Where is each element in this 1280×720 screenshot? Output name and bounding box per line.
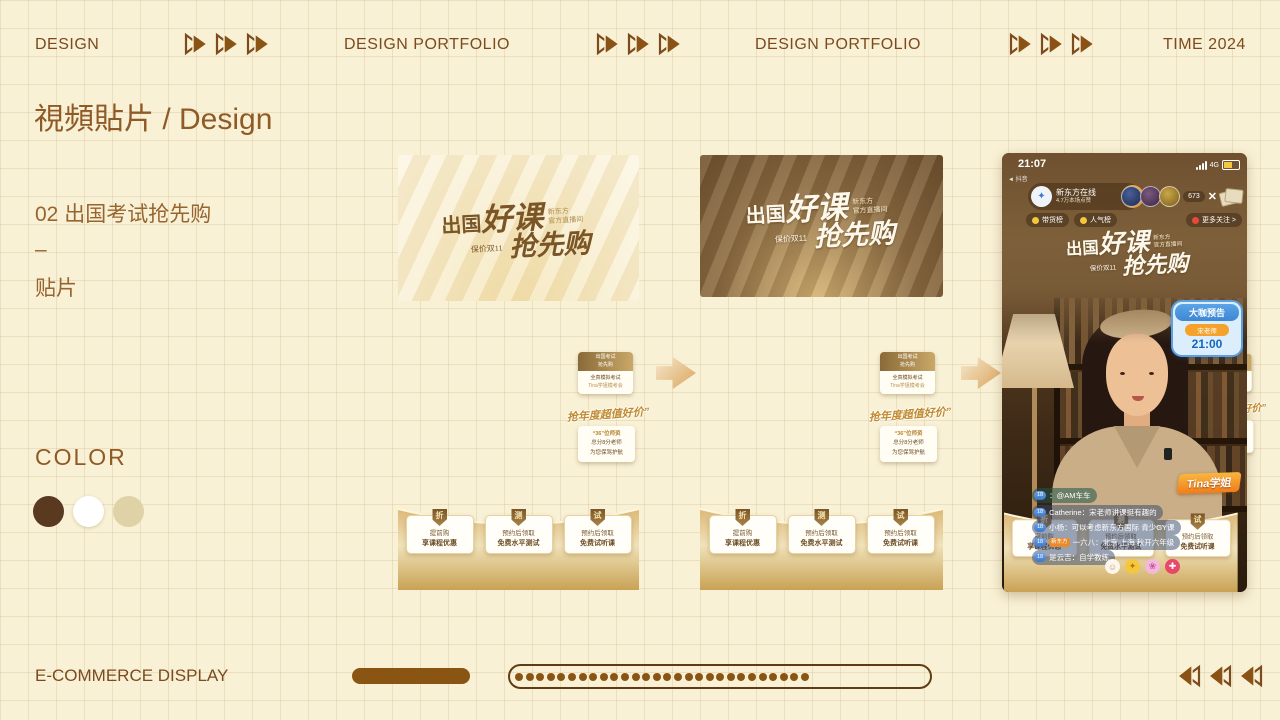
benefit-cards: 折 提前购 享课程优惠 测 预约后领取 免费水平测试 试 预约后领取 免费试听课 <box>700 515 943 554</box>
viewer-avatar[interactable] <box>1140 186 1161 207</box>
header-arrows-2 <box>595 32 683 56</box>
script-slogan: 抢年度超值好价” <box>856 402 965 425</box>
note-header-line2: 抢先购 <box>880 362 935 370</box>
script-slogan: 抢年度超值好价” <box>554 402 663 425</box>
benefit-line2: 享课程优惠 <box>712 538 774 548</box>
banner-price-tag: 保价双11 <box>775 232 808 245</box>
shield-badge-icon: 测 <box>814 509 829 526</box>
phone-mockup: 21:07 4G ◄ 抖音 ✦ 新东方在线 4.7万本场点赞 ¥ 673 ✕ 带… <box>1002 153 1247 592</box>
streamer-avatar: ✦ <box>1031 186 1052 207</box>
banner-word3: 抢先购 <box>1121 252 1188 278</box>
flow-arrow-icon <box>656 354 696 392</box>
play-arrow-icon <box>1008 32 1034 56</box>
benefit-card-discount: 折 提前购 享课程优惠 <box>406 515 474 554</box>
benefit-line2: 免费水平测试 <box>488 538 550 548</box>
shield-badge-icon: 试 <box>893 509 908 526</box>
benefit-card-test: 测 预约后领取 免费水平测试 <box>485 515 553 554</box>
progress-dots <box>515 673 812 681</box>
info-line2: 总分8分老师 <box>881 439 936 448</box>
info-line2: 总分8分老师 <box>579 439 634 448</box>
note-body-line1: 全真模拟考试 <box>881 374 934 382</box>
flow-arrow-icon <box>961 354 1001 392</box>
info-line3: 为您保驾护航 <box>881 449 936 458</box>
chat-message: 18 小杨：可以考虑新东方国际 青少GY课 <box>1032 520 1181 535</box>
level-badge: 18 <box>1034 538 1046 547</box>
gift-emoji-icon[interactable]: ✚ <box>1165 559 1180 574</box>
banner-price-tag: 保价双11 <box>1090 263 1117 273</box>
streamer-info: 新东方在线 4.7万本场点赞 <box>1056 188 1096 204</box>
smiley-emoji-icon[interactable]: ☺ <box>1105 559 1120 574</box>
chat-message: 18 ：@AM车车 <box>1032 488 1097 503</box>
play-arrow-icon <box>626 32 652 56</box>
banner-dark-panel: 出国 好课 新东方 官方直播间 保价双11 抢先购 <box>700 155 943 297</box>
benefit-line1: 预约后领取 <box>488 527 550 537</box>
chat-text: Catherine：宋老师讲课挺有趣的 <box>1049 507 1157 518</box>
color-swatch-dark-brown <box>33 496 64 527</box>
benefit-arc-panel-2: 折 提前购 享课程优惠 测 预约后领取 免费水平测试 试 预约后领取 免费试听课 <box>700 489 943 590</box>
chat-text: 小杨：可以考虑新东方国际 青少GY课 <box>1049 522 1174 533</box>
streamer-likes: 4.7万本场点赞 <box>1056 198 1096 205</box>
eye <box>1120 372 1125 375</box>
benefit-line1: 提前购 <box>712 527 774 537</box>
header-time-label: TIME 2024 <box>1163 36 1246 54</box>
shield-badge-icon: 折 <box>432 509 447 526</box>
banner-text-phone: 出国 好课 新东方 官方直播间 保价双11 抢先购 <box>1031 227 1218 282</box>
close-icon[interactable]: ✕ <box>1208 190 1217 203</box>
back-arrow-icon[interactable] <box>1238 662 1264 690</box>
app-back-label[interactable]: ◄ 抖音 <box>1008 174 1028 183</box>
shield-badge-icon: 试 <box>1190 513 1205 529</box>
back-arrow-icon[interactable] <box>1176 662 1202 690</box>
banner-brand-line2: 官方直播间 <box>852 205 887 216</box>
level-badge: 18 <box>1034 491 1046 500</box>
color-section-label: COLOR <box>35 444 127 471</box>
note-card-body: 全真模拟考试 Tina学姐模考会 <box>578 371 633 394</box>
footer-label: E-COMMERCE DISPLAY <box>35 666 228 686</box>
clap-emoji-icon[interactable]: ✦ <box>1125 559 1140 574</box>
info-card: “36”位师资 总分8分老师 为您保驾护航 <box>880 426 937 462</box>
banner-brand-line2: 官方直播间 <box>1153 240 1182 249</box>
host-name-tag: Tina学姐 <box>1176 472 1242 494</box>
goods-cards-icon[interactable] <box>1220 188 1242 205</box>
note-card-header: 出国考试 抢先购 <box>578 352 633 371</box>
play-arrow-icon <box>214 32 240 56</box>
level-badge: 18 <box>1034 523 1046 532</box>
banner-word1: 出国 <box>745 205 786 227</box>
more-follow-label: 更多关注 > <box>1202 215 1236 225</box>
status-icons: 4G <box>1196 160 1240 170</box>
preview-title: 大咖预告 <box>1175 304 1239 321</box>
header-arrows-3 <box>1008 32 1096 56</box>
header-design-label: DESIGN <box>35 36 99 54</box>
overlay-elements-stack-1: 出国考试 抢先购 全真模拟考试 Tina学姐模考会 抢年度超值好价” “36”位… <box>560 350 655 468</box>
header-portfolio-label-1: DESIGN PORTFOLIO <box>344 36 510 54</box>
level-badge: 18 <box>1034 508 1046 517</box>
emoji-reactions: ☺ ✦ ❀ ✚ <box>1105 559 1180 574</box>
benefit-line2: 免费水平测试 <box>791 538 853 548</box>
viewer-avatar[interactable] <box>1121 186 1142 207</box>
host-face <box>1106 334 1168 416</box>
play-arrow-icon <box>183 32 209 56</box>
banner-brand: 新东方 官方直播间 <box>548 206 584 226</box>
shield-badge-icon: 折 <box>735 509 750 526</box>
chat-message: 18 是云吉：自学教练 <box>1032 550 1115 565</box>
eye <box>1149 372 1154 375</box>
benefit-arc-panel-1: 折 提前购 享课程优惠 测 预约后领取 免费水平测试 试 预约后领取 免费试听课 <box>398 489 639 590</box>
page-title: 視頻貼片 / Design <box>34 94 272 138</box>
section-dash: – <box>35 238 47 262</box>
rank-badges: 带货榜 人气榜 <box>1026 213 1117 227</box>
banner-light-panel: 出国 好课 新东方 官方直播间 保价双11 抢先购 <box>398 155 639 301</box>
benefit-card-discount: 折 提前购 享课程优惠 <box>709 515 777 554</box>
network-label: 4G <box>1210 162 1219 169</box>
banner-word1: 出国 <box>441 215 482 237</box>
note-card: 出国考试 抢先购 全真模拟考试 Tina学姐模考会 <box>578 352 633 394</box>
banner-word1: 出国 <box>1065 240 1099 258</box>
note-header-line1: 出国考试 <box>578 354 633 362</box>
play-arrow-icon <box>1070 32 1096 56</box>
header-portfolio-label-2: DESIGN PORTFOLIO <box>755 36 921 54</box>
note-header-line2: 抢先购 <box>578 362 633 370</box>
overlay-elements-stack-2: 出国考试 抢先购 全真模拟考试 Tina学姐模考会 抢年度超值好价” “36”位… <box>862 350 957 468</box>
benefit-card-trial: 试 预约后领取 免费试听课 <box>564 515 632 554</box>
color-swatch-beige <box>113 496 144 527</box>
flower-emoji-icon[interactable]: ❀ <box>1145 559 1160 574</box>
viewers-row: 673 ✕ <box>1121 186 1242 207</box>
benefit-line2: 免费试听课 <box>567 538 629 548</box>
banner-brand: 新东方 官方直播间 <box>852 196 888 216</box>
info-card: “36”位师资 总分8分老师 为您保驾护航 <box>578 426 635 462</box>
note-card-header: 出国考试 抢先购 <box>880 352 935 371</box>
note-body-line1: 全真模拟考试 <box>579 374 632 382</box>
header-arrows-1 <box>183 32 271 56</box>
benefit-line2: 免费试听课 <box>870 538 932 548</box>
chat-text: ：@AM车车 <box>1049 490 1090 501</box>
info-line1: “36”位师资 <box>579 430 634 439</box>
color-swatch-white <box>73 496 104 527</box>
benefit-line2: 享课程优惠 <box>409 538 471 548</box>
preview-time: 21:00 <box>1173 337 1241 351</box>
banner-word3: 抢先购 <box>813 220 895 251</box>
preview-teacher: 宋老师 <box>1185 324 1229 336</box>
preview-badge[interactable]: 大咖预告 宋老师 21:00 <box>1171 300 1243 357</box>
more-follow-badge[interactable]: 更多关注 > <box>1186 213 1242 227</box>
status-time: 21:07 <box>1018 158 1046 170</box>
benefit-line1: 预约后领取 <box>870 527 932 537</box>
signal-icon <box>1196 161 1207 170</box>
banner-text-light: 出国 好课 新东方 官方直播间 保价双11 抢先购 <box>435 201 591 265</box>
note-body-line2: Tina学姐模考会 <box>881 382 934 390</box>
fan-badge: 新东方 <box>1049 538 1070 547</box>
chat-message: 18 Catherine：宋老师讲课挺有趣的 <box>1032 505 1163 520</box>
progress-bar-solid <box>352 668 470 684</box>
benefit-card-test: 测 预约后领取 免费水平测试 <box>788 515 856 554</box>
mouth <box>1132 396 1144 401</box>
chat-text: 一六八：北京 上海 秋开六年级 <box>1073 537 1175 548</box>
info-line1: “36”位师资 <box>881 430 936 439</box>
play-arrow-icon <box>245 32 271 56</box>
note-header-line1: 出国考试 <box>880 354 935 362</box>
microphone-clip <box>1164 448 1172 460</box>
play-arrow-icon <box>595 32 621 56</box>
note-body-line2: Tina学姐模考会 <box>579 382 632 390</box>
viewer-count: 673 <box>1183 191 1205 202</box>
banner-price-tag: 保价双11 <box>471 242 503 255</box>
back-arrow-icon[interactable] <box>1207 662 1233 690</box>
benefit-card-trial: 试 预约后领取 免费试听课 <box>867 515 935 554</box>
section-label: 贴片 <box>35 272 77 302</box>
back-arrows[interactable] <box>1176 662 1264 690</box>
section-item-number: 02 出国考试抢先购 <box>35 198 211 228</box>
level-badge: 18 <box>1034 553 1046 562</box>
benefit-line1: 预约后领取 <box>567 527 629 537</box>
streamer-name: 新东方在线 <box>1056 188 1096 198</box>
host-collar <box>1114 426 1160 468</box>
benefit-cards: 折 提前购 享课程优惠 测 预约后领取 免费水平测试 试 预约后领取 免费试听课 <box>398 515 639 554</box>
info-line3: 为您保驾护航 <box>579 449 634 458</box>
note-card: 出国考试 抢先购 全真模拟考试 Tina学姐模考会 <box>880 352 935 394</box>
banner-word3: 抢先购 <box>509 230 591 261</box>
banner-brand: 新东方 官方直播间 <box>1153 233 1182 249</box>
banner-brand-line2: 官方直播间 <box>548 215 583 226</box>
popularity-rank-badge[interactable]: 人气榜 <box>1074 213 1117 227</box>
shield-badge-icon: 试 <box>590 509 605 526</box>
benefit-line1: 提前购 <box>409 527 471 537</box>
chat-text: 是云吉：自学教练 <box>1049 552 1109 563</box>
goods-rank-badge[interactable]: 带货榜 <box>1026 213 1069 227</box>
progress-bar-dotted <box>508 664 932 689</box>
banner-text-dark: 出国 好课 新东方 官方直播间 保价双11 抢先购 <box>739 191 896 255</box>
benefit-line1: 预约后领取 <box>791 527 853 537</box>
chat-message: 18 新东方 一六八：北京 上海 秋开六年级 <box>1032 535 1180 550</box>
note-card-body: 全真模拟考试 Tina学姐模考会 <box>880 371 935 394</box>
play-arrow-icon <box>657 32 683 56</box>
shield-badge-icon: 测 <box>511 509 526 526</box>
portfolio-slide: DESIGN DESIGN PORTFOLIO DESIGN PORTFOLIO… <box>0 0 1280 720</box>
battery-icon <box>1222 160 1240 170</box>
play-arrow-icon <box>1039 32 1065 56</box>
app-name: 抖音 <box>1016 177 1028 183</box>
viewer-avatar[interactable] <box>1159 186 1180 207</box>
popularity-rank-label: 人气榜 <box>1090 215 1111 225</box>
goods-rank-label: 带货榜 <box>1042 215 1063 225</box>
